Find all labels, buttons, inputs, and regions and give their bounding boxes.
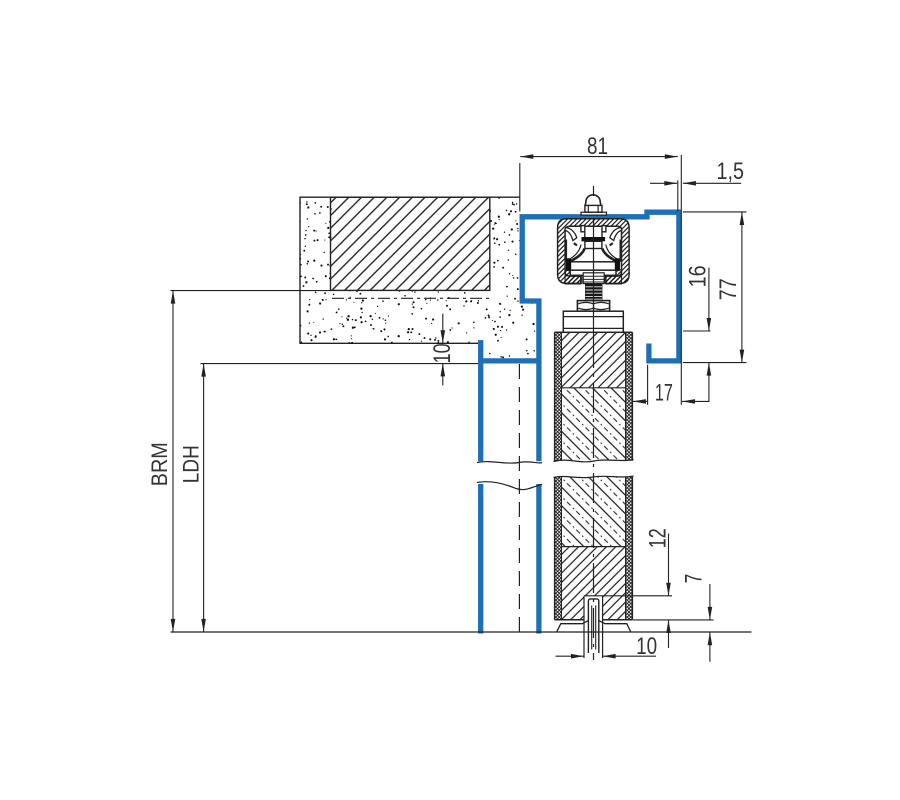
svg-text:12: 12 xyxy=(645,528,672,548)
svg-text:10: 10 xyxy=(429,343,456,363)
svg-text:17: 17 xyxy=(655,379,673,406)
svg-text:LDH: LDH xyxy=(179,445,204,483)
svg-text:BRM: BRM xyxy=(147,442,172,486)
svg-text:10: 10 xyxy=(636,633,657,660)
svg-text:1,5: 1,5 xyxy=(717,158,745,185)
svg-text:16: 16 xyxy=(684,265,711,287)
svg-text:77: 77 xyxy=(715,278,742,300)
svg-text:81: 81 xyxy=(587,133,608,160)
svg-text:7: 7 xyxy=(680,574,707,584)
